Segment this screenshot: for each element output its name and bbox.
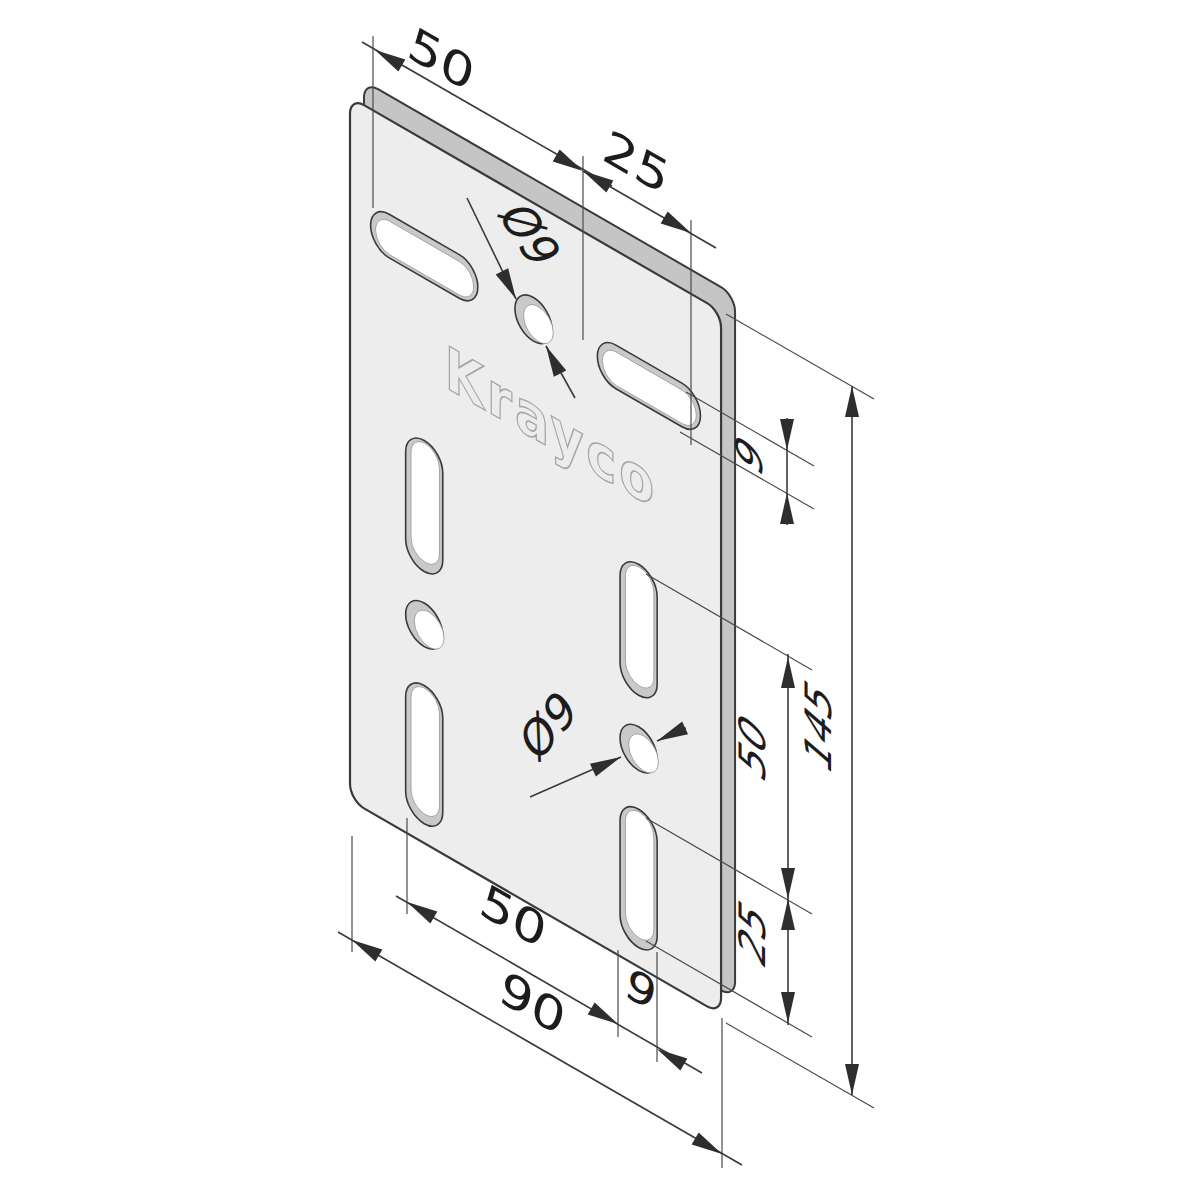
dim-text-top-offset: 25 — [600, 112, 666, 208]
arrowhead — [349, 934, 383, 962]
dim-text-right-spacing: 50 — [731, 709, 773, 790]
arrowhead — [781, 657, 795, 688]
dim-text-right-offset: 25 — [731, 896, 773, 976]
technical-drawing-canvas: Krayco — [0, 0, 1200, 1200]
dim-text-overall-height: 145 — [797, 675, 839, 782]
arrowhead — [781, 868, 795, 899]
arrowhead — [780, 419, 794, 450]
arrowhead — [781, 899, 795, 930]
arrowhead — [845, 386, 859, 417]
arrowhead — [553, 149, 587, 177]
arrowhead — [781, 992, 795, 1023]
arrowhead — [372, 44, 406, 72]
arrowhead — [845, 1064, 859, 1095]
arrowhead — [780, 493, 794, 524]
arrowhead — [661, 211, 695, 239]
arrowhead — [692, 1132, 726, 1160]
slot-bottom-right — [620, 799, 657, 959]
dim-text-overall-width: 90 — [496, 953, 564, 1051]
slot-bottom-left — [406, 675, 443, 835]
arrowhead — [404, 896, 438, 924]
arrowhead — [588, 1002, 622, 1030]
isometric-plate-drawing: Krayco — [0, 0, 1200, 1200]
dim-text-top-width: 50 — [405, 9, 473, 107]
